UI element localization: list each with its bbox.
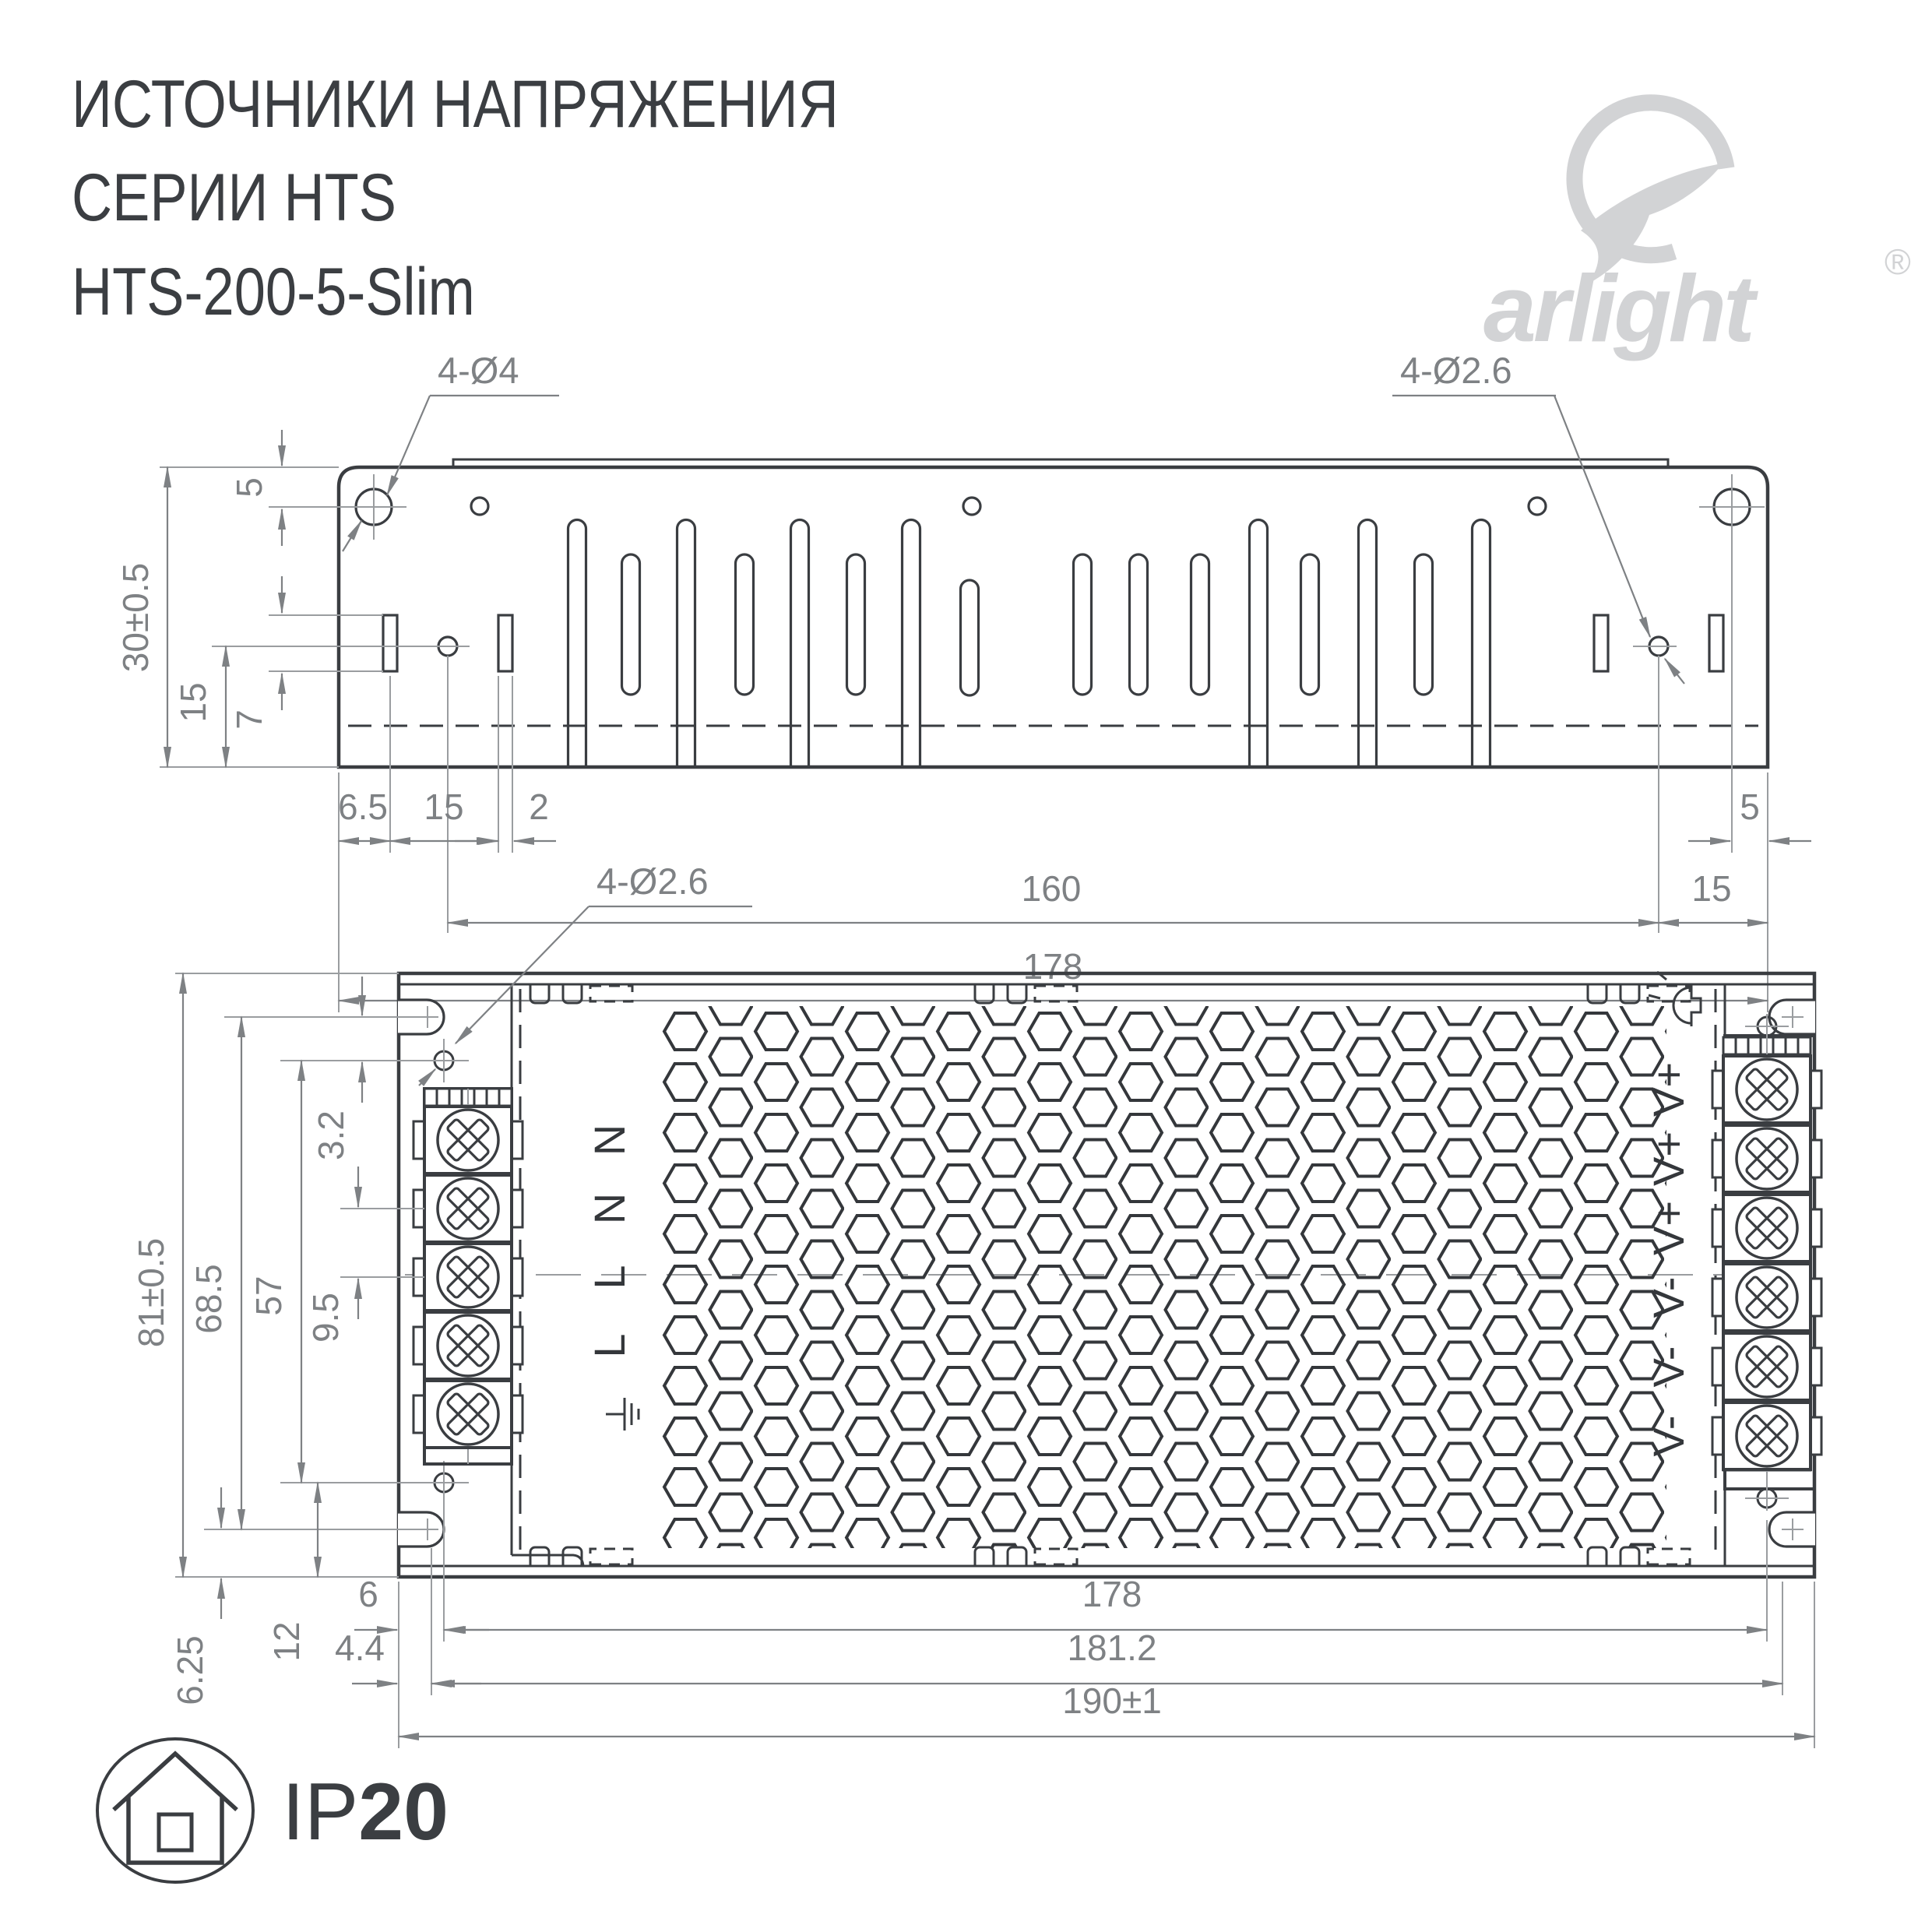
terminal-label-n1: N [585,1124,634,1156]
side-view-outline [339,459,1768,767]
output-terminal-block [1712,1014,1821,1511]
dim-edge-to-hole: 6 [358,1574,378,1614]
callout-holes-2.6mm-side: 4-Ø2.6 [1400,350,1512,391]
terminal-label-vminus1: V- [1644,1277,1693,1318]
top-cover-view: N N L L [131,860,1821,1748]
dim-side-height: 30±0.5 [115,563,156,672]
house-icon [114,1754,237,1863]
dim-hole-to-bottom: 15 [173,682,213,722]
side-view-extension-lines [160,467,1768,1012]
dim-hole-spacing-v: 57 [248,1276,289,1315]
ip-rating-text: IP20 [282,1767,449,1857]
side-view-callouts: 4-Ø4 4-Ø2.6 [343,350,1684,684]
input-terminal-block [413,1089,523,1464]
dim-hole-spacing: 160 [1022,868,1082,909]
callout-holes-4mm: 4-Ø4 [438,350,519,391]
dim-terminal-pitch: 9.5 [305,1293,346,1343]
input-terminal-labels: N N L L [585,1124,639,1431]
dim-cover-width: 181.2 [1067,1628,1156,1668]
dim-notch-to-bottom: 6.25 [170,1635,210,1705]
terminal-label-vminus2: V- [1644,1346,1693,1388]
ip-rating-badge: IP20 [97,1739,449,1882]
dim-edge-to-slot: 6.5 [338,787,388,827]
terminal-label-l2: L [585,1333,634,1357]
dim-slot-height: 7 [229,709,269,730]
dim-slot-spacing: 15 [424,787,463,827]
arlight-logo: arlight ® [1483,103,1911,361]
side-view: 30±0.5 5 7 15 6.5 15 2 5 [115,350,1811,1012]
dim-hole-to-bottom-edge: 12 [266,1621,307,1661]
vent-slots [568,520,1490,769]
logo-registered-mark: ® [1884,241,1911,282]
datasheet-page: ИСТОЧНИКИ НАПРЯЖЕНИЯ СЕРИИ HTS HTS-200-5… [0,0,1932,1932]
terminal-label-n2: N [585,1193,634,1224]
logo-wordmark: arlight [1483,255,1758,361]
terminal-label-vplus2: V+ [1644,1131,1693,1186]
ground-icon [606,1398,639,1431]
dim-body-width: 178 [1082,1574,1142,1614]
technical-drawing: arlight ® [0,0,1932,1932]
dim-total-width: 178 [1023,946,1083,987]
callout-holes-2.6mm-cover: 4-Ø2.6 [596,860,709,902]
dim-cover-height: 81±0.5 [131,1238,171,1347]
dim-top-to-hole: 5 [229,477,269,498]
dim-hole-right: 5 [1740,787,1760,827]
dim-notch-to-hole: 3.2 [311,1110,351,1160]
dim-total-width-overall: 190±1 [1062,1680,1162,1721]
dim-slot-width: 2 [529,787,549,827]
terminal-label-vplus1: V+ [1644,1062,1693,1117]
side-view-dimensions: 30±0.5 5 7 15 6.5 15 2 5 [115,430,1811,1001]
dim-notch-spacing: 68.5 [188,1264,229,1334]
hex-mesh [662,1006,1666,1548]
dim-edge-to-cover: 4.4 [335,1628,385,1668]
dim-hole-to-edge-right: 15 [1691,868,1731,909]
terminal-label-vplus3: V+ [1644,1201,1693,1255]
terminal-label-vminus3: V- [1644,1416,1693,1457]
terminal-label-l1: L [585,1265,634,1289]
mounting-features [341,474,1765,671]
